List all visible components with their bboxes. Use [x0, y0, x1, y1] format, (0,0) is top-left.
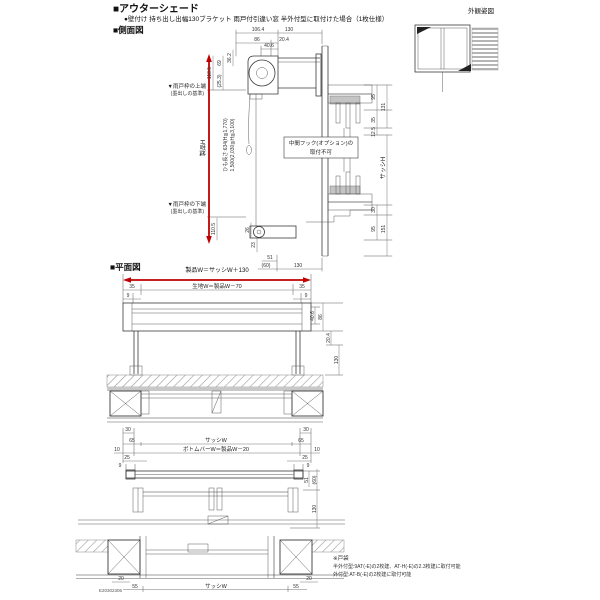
- appearance-title: 外観姿図: [468, 6, 494, 15]
- dim-10-left: 10: [114, 447, 120, 453]
- dim-plan-51: 51: [304, 477, 310, 483]
- label-product-width: 製品W＝サッシW＋130: [185, 266, 249, 274]
- dim-bottom-23: 23: [251, 242, 257, 248]
- page-title: ■アウターシェード: [113, 3, 199, 15]
- page-subtitle: ●壁付け 持ち出し出幅130ブラケット 雨戸付引違い窓 半外付型に取付けた場合（…: [124, 14, 388, 23]
- dim-plan-40-6: 40.6: [310, 311, 316, 321]
- label-upper-datum-1: ▼雨戸枠の上端: [168, 82, 207, 90]
- roller: [249, 60, 275, 86]
- label-lower-datum-2: (墨出しの基準): [171, 208, 205, 215]
- dim-right-95b: 95: [371, 226, 377, 232]
- doc-number: E20302306: [99, 588, 123, 593]
- dim-plan-86: 86: [318, 314, 324, 320]
- dim-20-right: 20: [306, 576, 312, 582]
- dim-9-left: 9: [127, 293, 130, 299]
- sash-handing-mark-bottom: [458, 64, 471, 71]
- plan-view-title: ■平面図: [110, 262, 141, 272]
- label-sash-height: サッシH: [380, 157, 387, 179]
- outer-wall-hatch: [107, 375, 323, 387]
- drawing-sheet: ■アウターシェード ●壁付け 持ち出し出幅130ブラケット 雨戸付引違い窓 半外…: [0, 0, 600, 600]
- label-hook-note-1: 中間フック(オプション)の: [289, 139, 353, 147]
- dim-20-left: 20: [118, 576, 124, 582]
- plan-view-drawing: [76, 274, 345, 592]
- arrow-down-head: [206, 236, 212, 244]
- dim-35-left: 35: [129, 284, 135, 290]
- dim-top-b: 20.4: [279, 37, 289, 43]
- dim-right-30: 30: [371, 207, 377, 213]
- dim-55-right: 55: [293, 584, 299, 590]
- dim-bar-9-left: 9: [119, 463, 122, 469]
- dim-top-a: 86: [254, 37, 260, 43]
- product-width-arrow: [123, 277, 311, 282]
- label-upper-datum-2: (墨出しの基準): [171, 90, 205, 97]
- note-line-3: 外付型:AT-B(-E)の2枚建に取付可能: [333, 571, 411, 578]
- dim-bottom-130: 130: [294, 263, 303, 269]
- frame-anchor-bottom: [330, 186, 360, 194]
- window-inner-frame: [418, 28, 467, 69]
- footnotes: ※戸袋 半外付型:9AT(-E)の2枚建、AT-H(-E)の2.3枚建に取付可能…: [333, 554, 461, 578]
- sash-handing-mark-top: [417, 27, 431, 34]
- arrow-right-head: [303, 277, 311, 282]
- cord-handle: [247, 146, 252, 155]
- header: ■アウターシェード ●壁付け 持ち出し出幅130ブラケット 雨戸付引違い窓 半外…: [113, 3, 494, 35]
- dim-65-right: 65: [298, 438, 304, 444]
- window-outline: [415, 25, 470, 72]
- dim-30-right: 30: [303, 427, 309, 433]
- dim-left-110-5: 110.5: [211, 223, 217, 235]
- dim-10-right: 10: [314, 447, 320, 453]
- label-hook-note-2: 取付不可: [310, 148, 333, 156]
- arrow-up-head: [206, 54, 212, 62]
- head-box: [248, 56, 278, 94]
- wall-gray-band: [107, 387, 323, 391]
- label-sash-width-2: サッシW: [205, 583, 228, 590]
- dim-30-left: 30: [125, 427, 131, 433]
- dim-left-69: 69: [217, 60, 223, 66]
- dim-right-12-5: 12.5: [371, 127, 377, 137]
- operation-cord: [249, 94, 250, 144]
- note-line-1: ※戸袋: [333, 554, 349, 562]
- dim-bottom-60: (60): [262, 263, 271, 269]
- bracket-plate: [316, 54, 321, 96]
- dim-35-right: 35: [299, 284, 305, 290]
- dim-plan-20-4: 20.4: [326, 333, 332, 343]
- dim-left-118-5: 118.5: [207, 67, 213, 79]
- dim-left-25-3: (25.3): [217, 74, 223, 87]
- dim-plan-60: (60): [312, 475, 318, 484]
- arrow-left-head: [123, 277, 131, 282]
- dim-top-total: 106.4: [252, 27, 265, 33]
- head-box-plan: [123, 303, 311, 331]
- technical-drawing: ■アウターシェード ●壁付け 持ち出し出幅130ブラケット 雨戸付引違い窓 半外…: [0, 0, 600, 600]
- label-lower-datum-1: ▼雨戸枠の下端: [168, 200, 207, 208]
- appearance-figure: [415, 25, 498, 92]
- label-bottom-bar-width: ボトムバーW＝製品W－20: [183, 445, 249, 453]
- dim-right-151: 151: [381, 225, 387, 234]
- side-view-title: ■側面図: [113, 25, 144, 35]
- dim-top-right: 130: [285, 27, 294, 33]
- dim-right-35: 35: [371, 117, 377, 123]
- label-fabric-width: 生地W＝製品W－70: [192, 282, 242, 290]
- note-line-2: 半外付型:9AT(-E)の2枚建、AT-H(-E)の2.3枚建に取付可能: [333, 563, 461, 570]
- dim-right-131: 131: [381, 103, 387, 112]
- dim-right-95: 95: [371, 94, 377, 100]
- sill-step-profile: [306, 210, 372, 222]
- dim-9-right: 9: [305, 293, 308, 299]
- label-product-height: 製品H: [199, 140, 207, 156]
- dim-plan-130: 130: [334, 356, 340, 365]
- dim-plan-130b: 130: [312, 505, 318, 514]
- product-height-arrow: [206, 54, 212, 244]
- dim-bar-9-right: 9: [307, 463, 310, 469]
- dim-bottom-26: 26: [245, 227, 251, 233]
- dim-bottom-51: 51: [267, 255, 273, 261]
- label-cord-length-2: 1,500(2,030≦H≦3,100): [230, 118, 236, 171]
- dim-box-depth: 40.6: [264, 43, 274, 49]
- dim-55-left: 55: [132, 584, 138, 590]
- dim-25-left: 25: [124, 455, 130, 461]
- label-sash-width: サッシW: [205, 437, 228, 444]
- label-cord-length-1: ひも長さ:634(H≦1,770): [222, 118, 229, 172]
- dim-left-36-2: 36.2: [227, 53, 233, 63]
- shade-box-hatched: [472, 28, 498, 70]
- dim-65-left: 65: [129, 438, 135, 444]
- dim-25-right: 25: [302, 455, 308, 461]
